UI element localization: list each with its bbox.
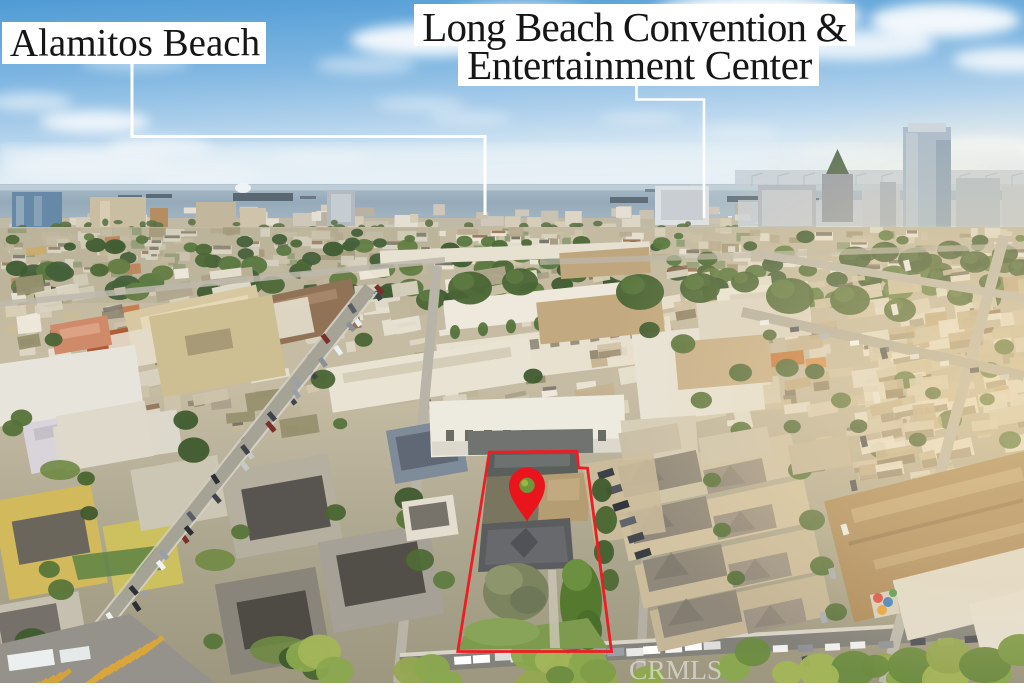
svg-text:Entertainment Center: Entertainment Center bbox=[467, 42, 812, 88]
svg-text:CRMLS: CRMLS bbox=[629, 654, 722, 683]
svg-text:Alamitos Beach: Alamitos Beach bbox=[10, 22, 260, 65]
